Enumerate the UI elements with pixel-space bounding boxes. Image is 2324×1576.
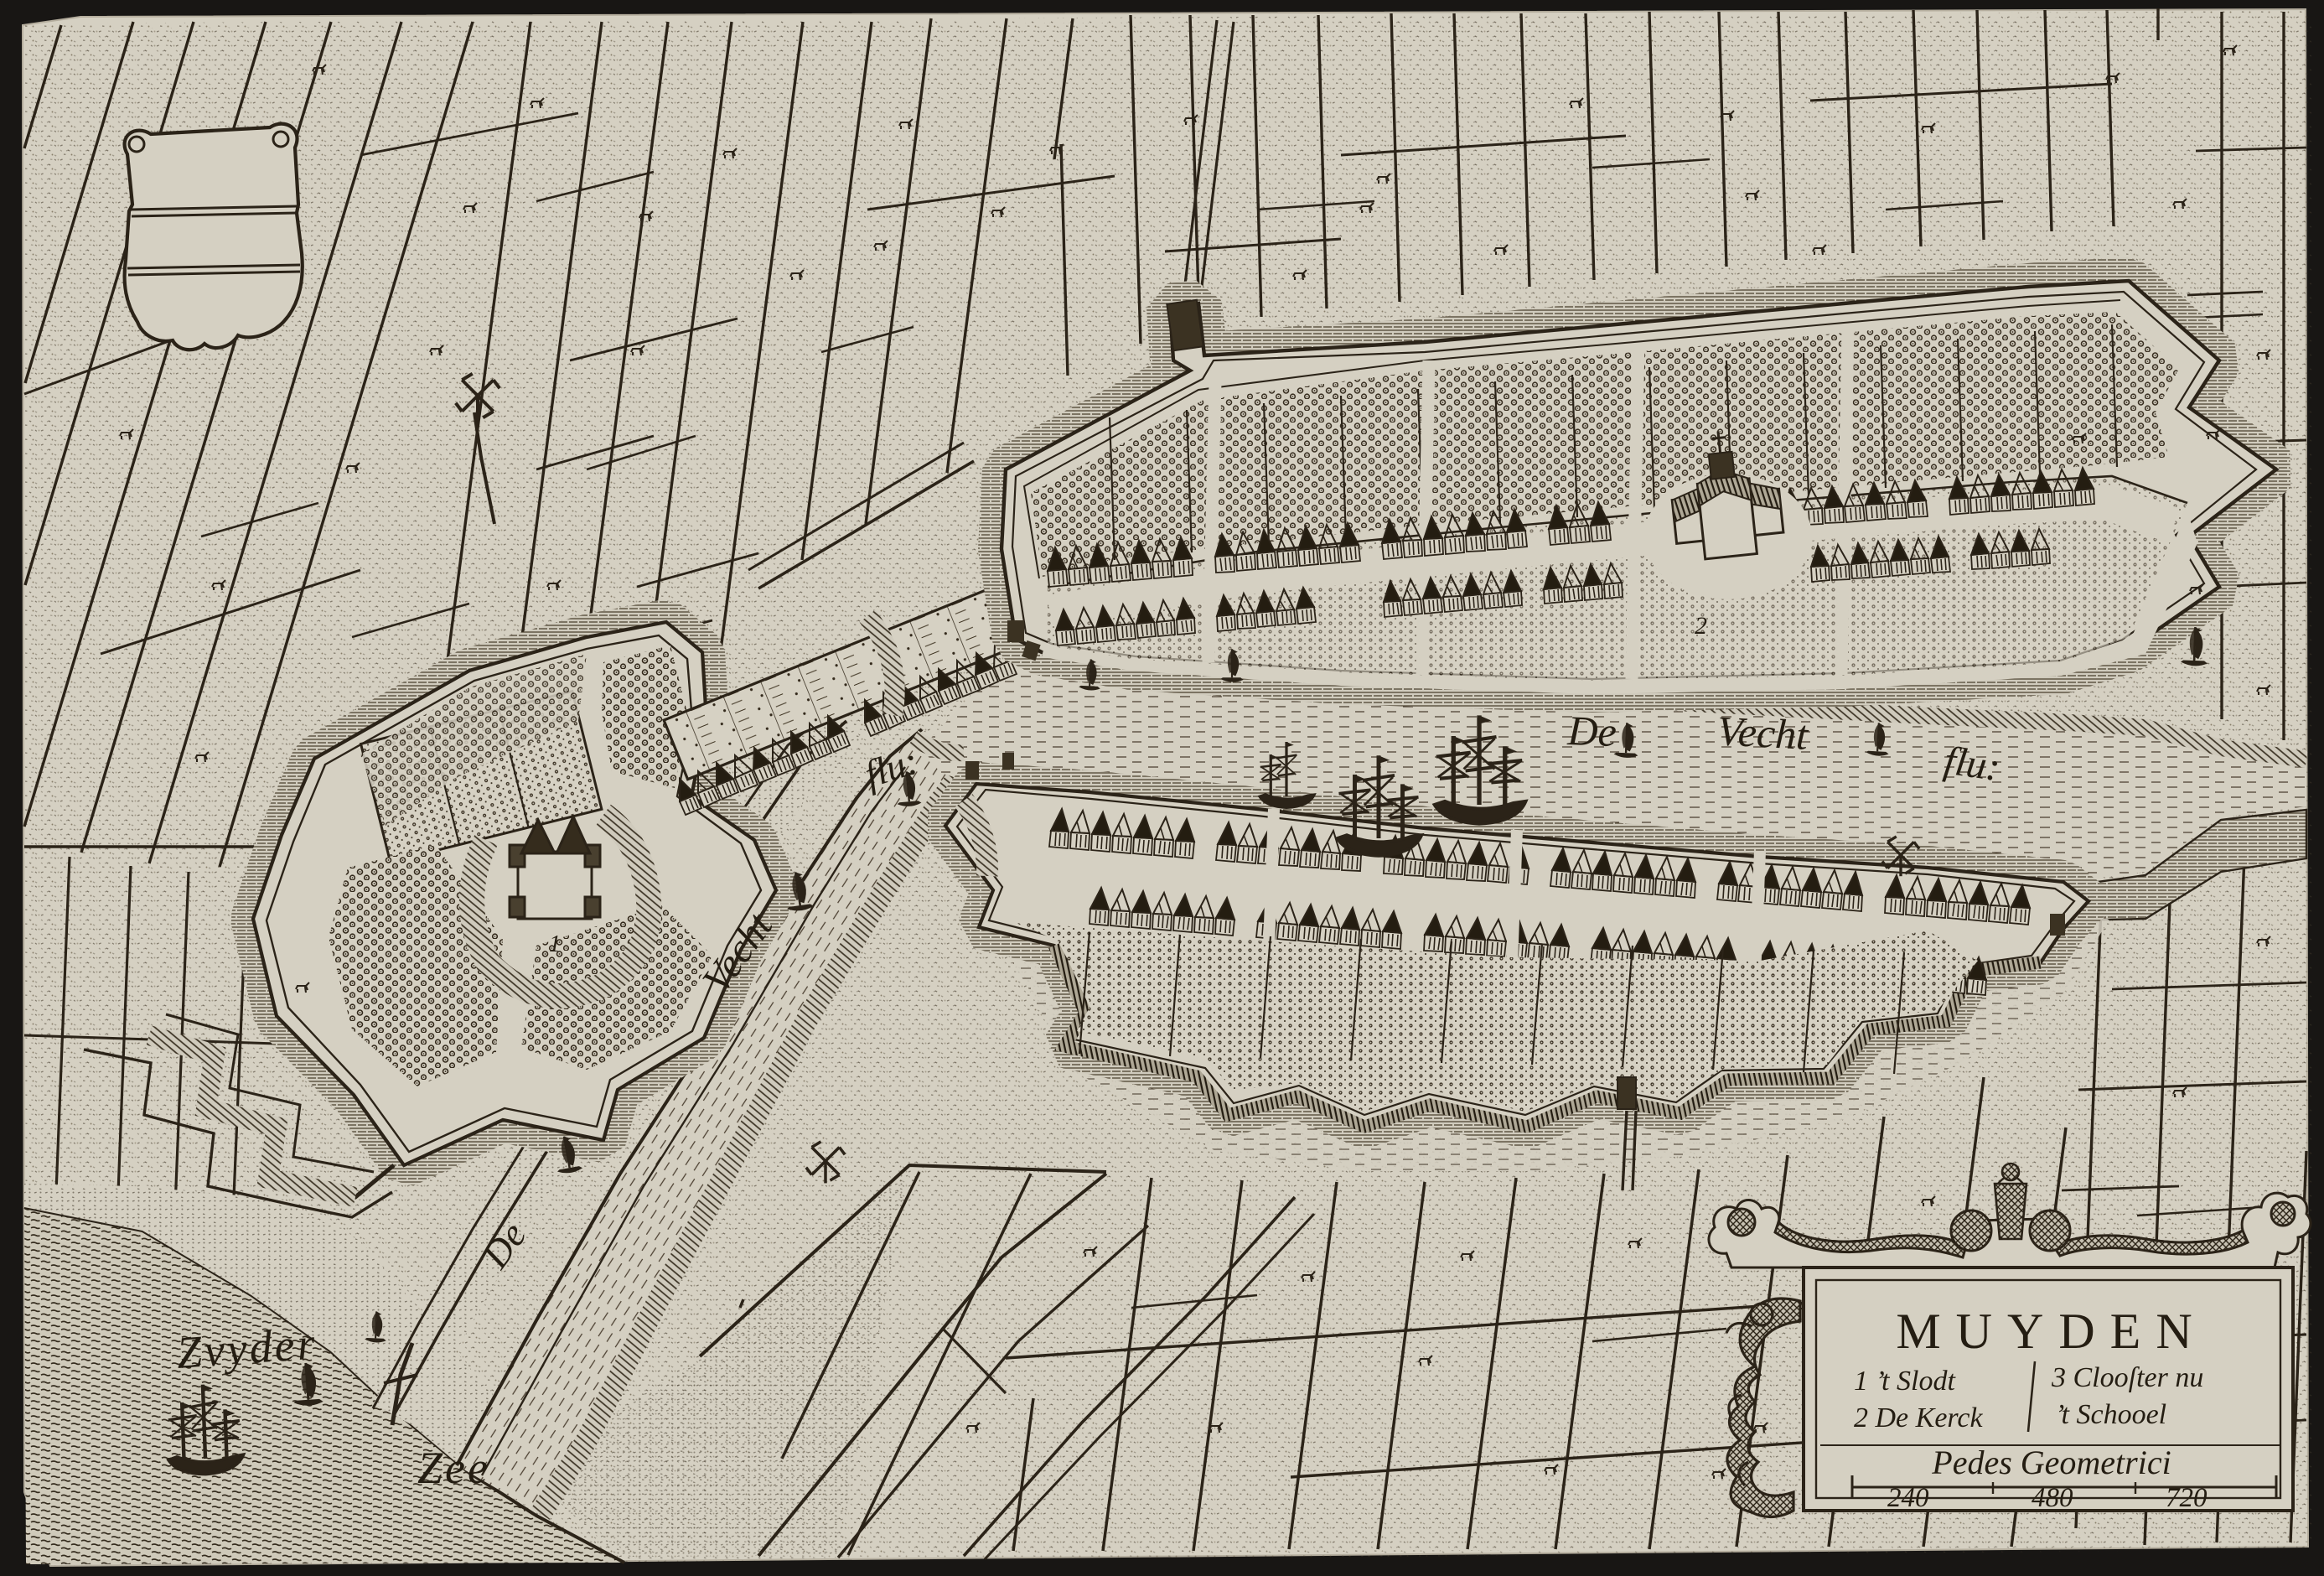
svg-text:Zvyder: Zvyder xyxy=(175,1318,319,1378)
svg-text:flu:: flu: xyxy=(1941,738,2002,790)
svg-text:240: 240 xyxy=(1887,1483,1929,1513)
svg-text:480: 480 xyxy=(2032,1483,2073,1513)
svg-text:Vecht: Vecht xyxy=(1716,707,1810,759)
svg-text:Zee: Zee xyxy=(417,1443,490,1493)
svg-text:3 Clooſter nu: 3 Clooſter nu xyxy=(2051,1362,2203,1393)
svg-text:2 De Kerck: 2 De Kerck xyxy=(1854,1402,1983,1433)
svg-text:720: 720 xyxy=(2166,1483,2208,1513)
svg-text:1: 1 xyxy=(549,931,561,957)
svg-text:MUYDEN: MUYDEN xyxy=(1896,1304,2207,1359)
svg-text:2: 2 xyxy=(1695,612,1707,640)
svg-text:Pedes Geometrici: Pedes Geometrici xyxy=(1931,1444,2171,1481)
svg-text:’t Schooel: ’t Schooel xyxy=(2055,1399,2166,1430)
svg-text:De: De xyxy=(1566,707,1617,755)
svg-text:1 ’t Slodt: 1 ’t Slodt xyxy=(1854,1366,1956,1397)
